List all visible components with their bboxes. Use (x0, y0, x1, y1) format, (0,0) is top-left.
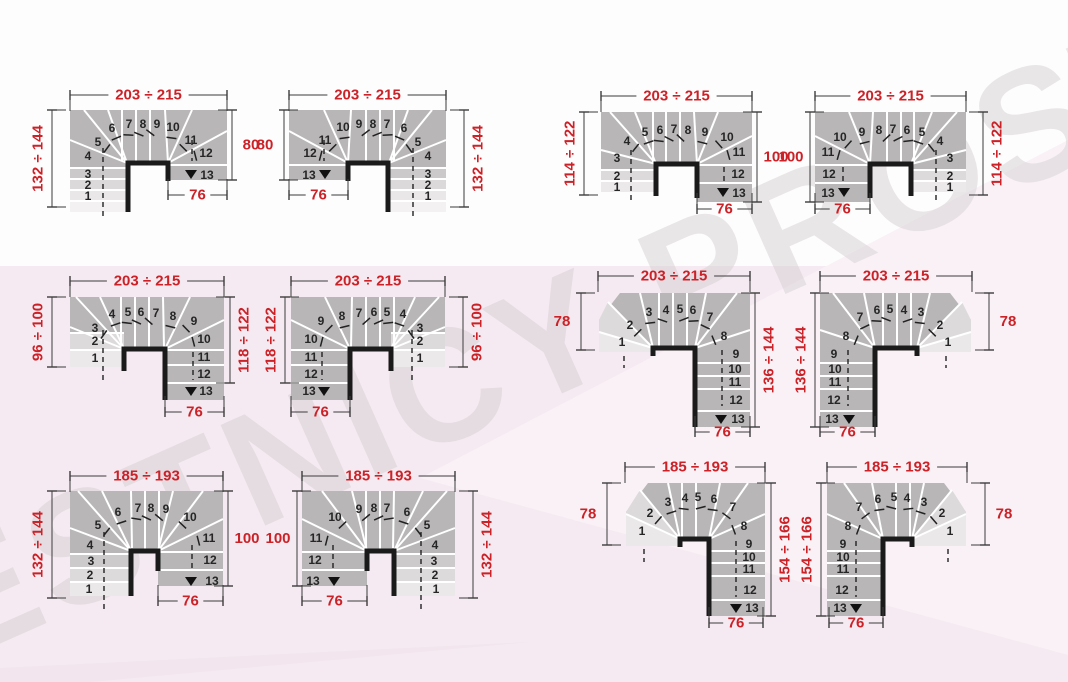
step-number: 5 (424, 518, 431, 532)
step-number: 4 (432, 538, 439, 552)
step-number: 1 (417, 351, 424, 365)
step-number: 1 (947, 524, 954, 538)
step-number: 7 (356, 306, 363, 320)
step-number: 6 (690, 303, 697, 317)
step-number: 5 (642, 125, 649, 139)
step-number: 9 (746, 537, 753, 551)
step-number: 13 (731, 412, 745, 426)
dimension-label: 76 (839, 424, 856, 441)
step-number: 7 (730, 500, 737, 514)
step-number: 13 (825, 412, 839, 426)
tread-line (131, 491, 132, 548)
step-number: 3 (947, 151, 954, 165)
step-number: 13 (821, 186, 835, 200)
step-number: 9 (356, 502, 363, 516)
dimension-label: 132 ÷ 144 (30, 511, 47, 578)
dimension-label: 114 ÷ 122 (562, 121, 579, 187)
step-number: 10 (728, 362, 742, 376)
step-number: 9 (859, 125, 866, 139)
dimension-label: 203 ÷ 215 (863, 268, 930, 285)
step-number: 4 (663, 303, 670, 317)
tread-step (911, 181, 966, 192)
step-number: 2 (647, 506, 654, 520)
tread-step (388, 168, 446, 179)
dimension-label: 185 ÷ 193 (113, 468, 180, 485)
step-number: 5 (415, 135, 422, 149)
dimension-label: 118 ÷ 122 (236, 307, 253, 373)
dimension-label: 96 ÷ 100 (469, 303, 486, 361)
step-number: 7 (135, 501, 142, 515)
dimension-label: 100 (265, 530, 290, 547)
step-number: 12 (203, 553, 217, 567)
tread-step (70, 190, 128, 201)
step-number: 9 (733, 347, 740, 361)
step-number: 11 (837, 562, 850, 576)
step-number: 2 (947, 169, 954, 183)
step-number: 6 (875, 492, 882, 506)
dimension-label: 76 (834, 201, 851, 218)
step-number: 9 (702, 125, 709, 139)
step-number: 13 (302, 384, 316, 398)
step-number: 8 (685, 123, 692, 137)
step-number: 13 (732, 186, 746, 200)
step-number: 11 (729, 375, 742, 389)
step-number: 9 (318, 314, 325, 328)
dimension-label: 76 (714, 424, 731, 441)
step-number: 13 (302, 168, 316, 182)
step-number: 3 (425, 167, 432, 181)
walking-line-tick (123, 135, 133, 136)
step-number: 7 (384, 117, 391, 131)
step-number: 5 (891, 490, 898, 504)
step-number: 8 (371, 501, 378, 515)
dimension-label: 76 (189, 187, 206, 204)
step-number: 3 (88, 554, 95, 568)
step-number: 6 (115, 505, 122, 519)
step-number: 2 (92, 334, 99, 348)
step-number: 10 (720, 130, 734, 144)
dimension-label: 76 (716, 201, 733, 218)
step-number: 9 (831, 347, 838, 361)
step-number: 6 (904, 123, 911, 137)
step-number: 5 (125, 305, 132, 319)
tread-step (70, 201, 128, 212)
dimension-label: 154 ÷ 166 (799, 516, 816, 583)
step-number: 13 (200, 168, 214, 182)
dimension-label: 132 ÷ 144 (470, 125, 487, 192)
dimension-label: 76 (728, 615, 745, 632)
step-number: 12 (731, 167, 745, 181)
dimension-label: 132 ÷ 144 (30, 125, 47, 192)
step-number: 1 (619, 335, 626, 349)
dimension-label: 114 ÷ 122 (989, 121, 1006, 187)
step-number: 2 (627, 318, 634, 332)
dimension-label: 78 (1000, 313, 1017, 330)
tread-line (351, 297, 352, 347)
walking-line-tick (122, 322, 132, 323)
step-number: 12 (308, 553, 322, 567)
step-number: 4 (901, 303, 908, 317)
step-number: 12 (743, 583, 757, 597)
dimension-label: 203 ÷ 215 (643, 88, 710, 105)
dimension-label: 80 (257, 137, 274, 154)
dimension-label: 76 (848, 615, 865, 632)
step-number: 8 (741, 519, 748, 533)
tread-step (388, 190, 446, 201)
step-number: 1 (639, 524, 646, 538)
step-number: 1 (92, 351, 99, 365)
dimension-label: 76 (312, 404, 329, 421)
step-number: 5 (919, 125, 926, 139)
step-number: 6 (404, 505, 411, 519)
dimension-label: 76 (326, 593, 343, 610)
step-number: 11 (305, 350, 318, 364)
step-number: 12 (304, 367, 318, 381)
step-number: 8 (843, 329, 850, 343)
step-number: 8 (370, 117, 377, 131)
step-number: 9 (191, 314, 198, 328)
tread-step (601, 170, 656, 181)
step-number: 10 (336, 120, 350, 134)
step-number: 8 (876, 123, 883, 137)
step-number: 2 (939, 506, 946, 520)
step-number: 3 (85, 167, 92, 181)
step-number: 10 (328, 510, 342, 524)
tread-step (388, 201, 446, 212)
step-number: 10 (304, 332, 318, 346)
dimension-label: 78 (996, 506, 1013, 523)
dimension-label: 132 ÷ 144 (479, 511, 496, 578)
tread-step (70, 554, 131, 568)
step-number: 11 (198, 350, 211, 364)
step-number: 8 (721, 329, 728, 343)
dimension-label: 96 ÷ 100 (30, 303, 47, 361)
dimension-label: 78 (580, 506, 597, 523)
step-number: 11 (733, 145, 746, 159)
step-number: 7 (671, 122, 678, 136)
step-number: 7 (707, 310, 714, 324)
step-number: 8 (845, 519, 852, 533)
dimension-label: 76 (310, 187, 327, 204)
walking-line-tick (383, 322, 393, 323)
dimension-label: 76 (186, 404, 203, 421)
step-number: 11 (743, 562, 756, 576)
tread-step (70, 568, 131, 582)
step-number: 3 (646, 305, 653, 319)
step-number: 1 (86, 582, 93, 596)
tread-step (394, 582, 455, 596)
step-number: 6 (711, 492, 718, 506)
tread-step (394, 554, 455, 568)
dimension-label: 185 ÷ 193 (662, 459, 729, 476)
step-number: 5 (887, 302, 894, 316)
step-number: 12 (729, 393, 743, 407)
step-number: 10 (197, 332, 211, 346)
tread-line (393, 491, 394, 548)
dimension-label: 78 (554, 313, 571, 330)
step-number: 1 (945, 335, 952, 349)
step-number: 4 (85, 149, 92, 163)
step-number: 10 (166, 120, 180, 134)
step-number: 2 (87, 568, 94, 582)
step-number: 3 (92, 321, 99, 335)
step-number: 7 (153, 306, 160, 320)
step-number: 7 (890, 122, 897, 136)
tread-line (163, 297, 164, 347)
step-number: 2 (614, 169, 621, 183)
dimension-label: 100 (778, 149, 803, 166)
dimension-label: 76 (182, 593, 199, 610)
step-number: 2 (937, 318, 944, 332)
step-number: 13 (745, 601, 759, 615)
dimension-label: 100 (234, 530, 259, 547)
walking-line-tick (689, 321, 699, 322)
step-number: 3 (431, 554, 438, 568)
dimension-label: 203 ÷ 215 (857, 88, 924, 105)
step-number: 12 (303, 146, 317, 160)
step-number: 12 (822, 167, 836, 181)
step-number: 5 (384, 305, 391, 319)
dimension-label: 203 ÷ 215 (115, 87, 182, 104)
dimension-label: 154 ÷ 166 (777, 516, 794, 583)
step-number: 6 (109, 121, 116, 135)
step-number: 12 (827, 393, 841, 407)
step-number: 4 (904, 491, 911, 505)
step-number: 6 (138, 305, 145, 319)
tread-step (388, 179, 446, 190)
step-number: 11 (203, 531, 216, 545)
step-number: 3 (665, 495, 672, 509)
step-number: 5 (95, 135, 102, 149)
step-number: 4 (87, 538, 94, 552)
step-number: 8 (140, 117, 147, 131)
step-number: 3 (921, 495, 928, 509)
step-number: 4 (400, 307, 407, 321)
step-number: 9 (154, 117, 161, 131)
step-number: 4 (937, 134, 944, 148)
stair-plans-page: LESTNICY-PROSTO.RU12345678910111213203 ÷… (0, 0, 1068, 682)
step-number: 7 (857, 310, 864, 324)
step-number: 10 (183, 510, 197, 524)
step-number: 2 (432, 568, 439, 582)
step-number: 12 (197, 367, 211, 381)
dimension-label: 185 ÷ 193 (864, 459, 931, 476)
dimension-label: 203 ÷ 215 (334, 87, 401, 104)
step-number: 11 (829, 375, 842, 389)
dimension-label: 203 ÷ 215 (335, 273, 402, 290)
step-number: 10 (828, 362, 842, 376)
dimension-label: 203 ÷ 215 (641, 268, 708, 285)
step-number: 12 (835, 583, 849, 597)
step-number: 13 (833, 601, 847, 615)
tread-step (911, 170, 966, 181)
walking-line-tick (871, 321, 881, 322)
tread-step (394, 568, 455, 582)
step-number: 4 (109, 307, 116, 321)
dimension-label: 185 ÷ 193 (345, 468, 412, 485)
step-number: 11 (185, 133, 198, 147)
step-number: 11 (310, 531, 323, 545)
step-number: 6 (657, 123, 664, 137)
step-number: 3 (417, 321, 424, 335)
step-number: 6 (371, 305, 378, 319)
step-number: 9 (356, 117, 363, 131)
step-number: 8 (148, 501, 155, 515)
step-number: 7 (384, 501, 391, 515)
step-number: 4 (682, 491, 689, 505)
tread-step (70, 582, 131, 596)
step-number: 3 (918, 305, 925, 319)
step-number: 2 (417, 334, 424, 348)
step-number: 13 (199, 384, 213, 398)
dimension-label: 203 ÷ 215 (114, 273, 181, 290)
step-number: 5 (677, 302, 684, 316)
step-number: 9 (163, 502, 170, 516)
stair-plans-canvas: LESTNICY-PROSTO.RU12345678910111213203 ÷… (0, 0, 1068, 682)
step-number: 7 (126, 117, 133, 131)
step-number: 5 (695, 490, 702, 504)
dimension-label: 136 ÷ 144 (761, 326, 778, 393)
step-number: 8 (170, 309, 177, 323)
step-number: 6 (401, 121, 408, 135)
step-number: 11 (319, 133, 332, 147)
step-number: 11 (822, 145, 835, 159)
dimension-label: 118 ÷ 122 (263, 307, 280, 373)
step-number: 5 (95, 518, 102, 532)
walking-line-tick (383, 135, 393, 136)
step-number: 9 (840, 537, 847, 551)
tread-step (601, 181, 656, 192)
step-number: 12 (199, 146, 213, 160)
step-number: 3 (614, 151, 621, 165)
step-number: 6 (874, 303, 881, 317)
step-number: 4 (624, 134, 631, 148)
step-number: 4 (425, 149, 432, 163)
step-number: 10 (833, 130, 847, 144)
step-number: 8 (339, 309, 346, 323)
tread-step (70, 179, 128, 190)
step-number: 1 (433, 582, 440, 596)
tread-step (70, 168, 128, 179)
dimension-label: 136 ÷ 144 (793, 326, 810, 393)
step-number: 7 (856, 500, 863, 514)
